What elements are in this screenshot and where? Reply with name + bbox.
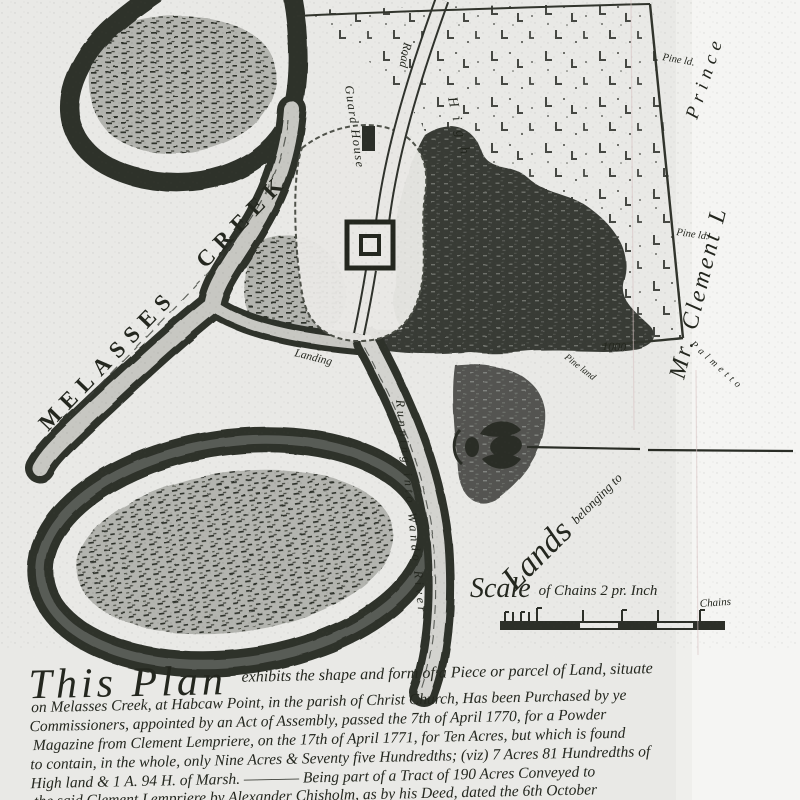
distance-1000-label: 1000 <box>602 339 627 354</box>
plat-map-scan: MELASSES CREEK Guard House Road High Lan… <box>0 0 800 800</box>
scale-word: Scale <box>470 573 531 604</box>
scale-rest: of Chains 2 pr. Inch <box>539 583 658 599</box>
map-canvas: MELASSES CREEK Guard House Road High Lan… <box>0 0 800 800</box>
scale-unit-label: Chains <box>699 596 731 610</box>
